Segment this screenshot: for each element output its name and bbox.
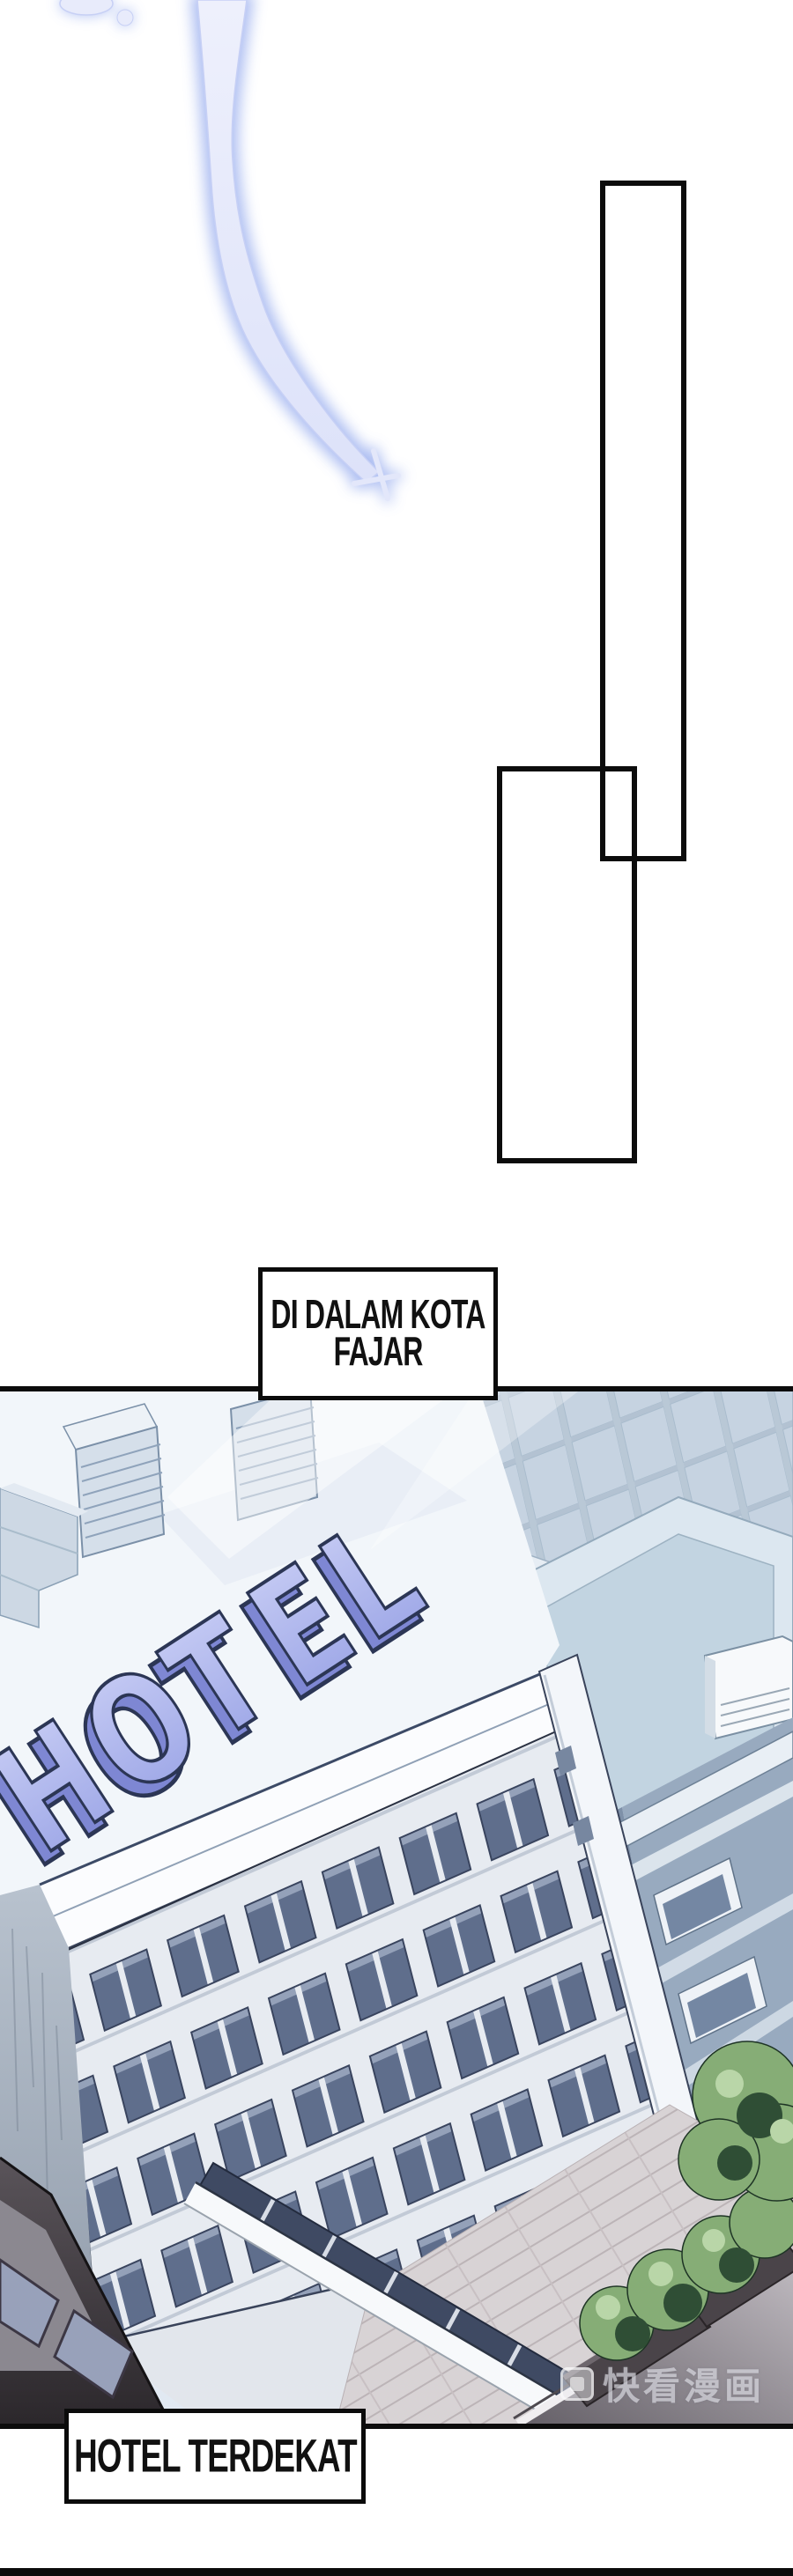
rooftop-elevator-box [705,1636,793,1738]
caption-line: FAJAR [334,1331,423,1373]
city-illustration: H O T E L H O T E L [0,1388,793,2434]
speech-frame-1 [603,183,684,859]
wisp-blob [60,0,113,15]
magic-wisp [60,0,398,498]
kuaikan-logo-icon [560,2367,594,2401]
speech-frame-2 [500,769,634,1161]
next-panel-edge [0,2568,793,2576]
watermark: 快看漫画 [560,2357,765,2410]
caption-box-location: DI DALAM KOTA FAJAR [258,1267,498,1400]
caption-box-label: HOTEL TERDEKAT [64,2409,366,2504]
comic-page: H O T E L H O T E L DI DALAM KOTA FAJAR … [0,0,793,2576]
caption-line: HOTEL TERDEKAT [74,2432,357,2480]
watermark-text: 快看漫画 [603,2357,765,2410]
